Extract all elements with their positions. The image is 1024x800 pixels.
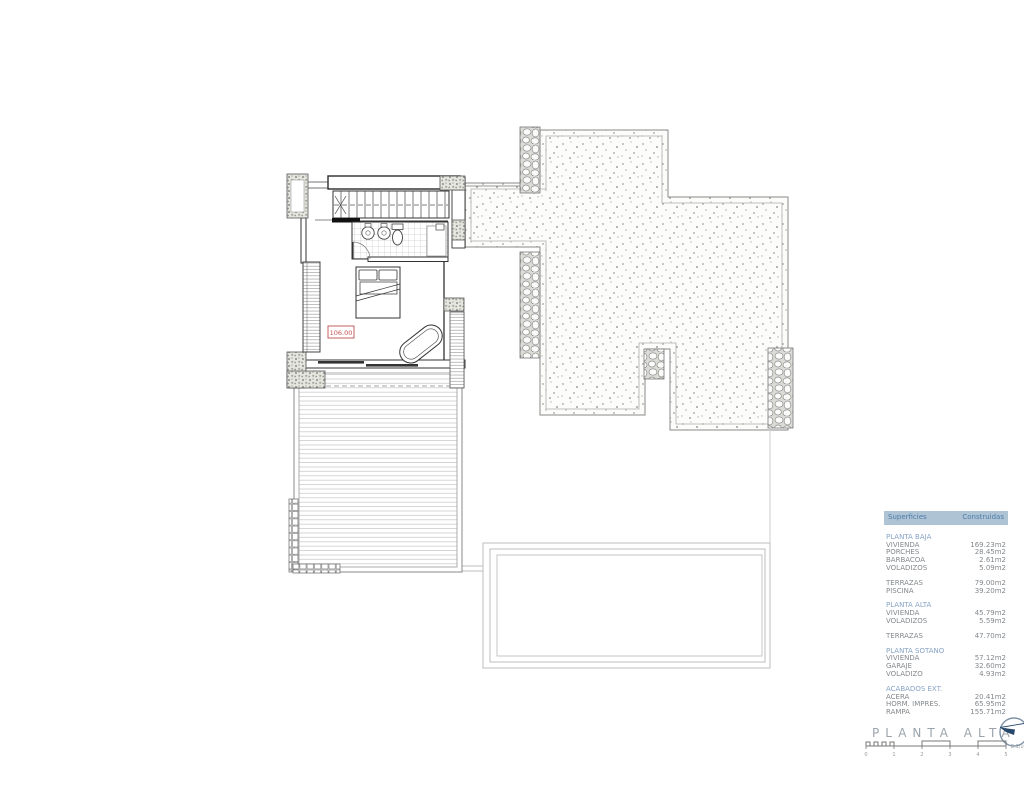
level-label: 106.00 bbox=[328, 326, 354, 338]
side-deck-strip bbox=[450, 312, 464, 388]
header-col-construidas: Construidas bbox=[962, 514, 1004, 522]
tap bbox=[365, 224, 371, 228]
toilet-tank bbox=[392, 224, 403, 230]
floor-plan-sheet: 106.00 Superficies Construidas PLANTA BA… bbox=[0, 0, 1024, 800]
row-value: 39.20m2 bbox=[975, 588, 1006, 596]
row-label: TERRAZAS bbox=[886, 633, 923, 641]
svg-text:106.00: 106.00 bbox=[330, 329, 353, 337]
pergola-beams-bottom bbox=[293, 564, 340, 573]
surfaces-table: Superficies Construidas PLANTA BAJAVIVIE… bbox=[884, 511, 1008, 717]
row-value: 5.09m2 bbox=[979, 565, 1006, 573]
row-value: 47.70m2 bbox=[975, 633, 1006, 641]
row-label: RAMPA bbox=[886, 709, 910, 717]
sliding-door-leaf bbox=[366, 364, 418, 367]
row-value: 5.59m2 bbox=[979, 618, 1006, 626]
sink bbox=[362, 227, 374, 239]
scale-number: 3 bbox=[948, 752, 951, 758]
wall-block bbox=[440, 176, 465, 190]
row-value: 4.93m2 bbox=[979, 671, 1006, 679]
surfaces-table-header: Superficies Construidas bbox=[884, 511, 1008, 525]
deck-terrace bbox=[289, 368, 462, 573]
scale-number: 2 bbox=[920, 752, 923, 758]
table-row: VOLADIZO4.93m2 bbox=[886, 671, 1006, 679]
table-row: VOLADIZOS5.59m2 bbox=[886, 618, 1006, 626]
left-wall bbox=[301, 218, 306, 263]
row-label: VOLADIZO bbox=[886, 671, 923, 679]
sink bbox=[378, 227, 390, 239]
table-section: ACABADOS EXT.ACERA20.41m2HORM. IMPRES.65… bbox=[886, 686, 1006, 717]
stone-wall-right bbox=[768, 348, 793, 428]
table-section: PLANTA SOTANOVIVIENDA57.12m2GARAJE32.60m… bbox=[886, 648, 1006, 679]
scale-number: 1 bbox=[892, 752, 895, 758]
table-row: TERRAZAS47.70m2 bbox=[886, 633, 1006, 641]
table-section: PLANTA BAJAVIVIENDA169.23m2PORCHES28.45m… bbox=[886, 534, 1006, 573]
wall-block bbox=[287, 371, 325, 388]
table-row: VOLADIZOS5.09m2 bbox=[886, 565, 1006, 573]
table-section: TERRAZAS47.70m2 bbox=[886, 633, 1006, 641]
bathroom bbox=[352, 222, 448, 262]
pergola-beams-left bbox=[289, 499, 298, 572]
scale-number: 0 bbox=[864, 752, 867, 758]
gravel-roof-terrace bbox=[465, 130, 788, 430]
swimming-pool bbox=[462, 428, 770, 668]
surfaces-table-body: PLANTA BAJAVIVIENDA169.23m2PORCHES28.45m… bbox=[884, 525, 1008, 717]
header-col-superficies: Superficies bbox=[888, 514, 927, 522]
staircase bbox=[315, 191, 449, 223]
wall-block bbox=[444, 298, 464, 311]
scale-number: 4 bbox=[976, 752, 979, 758]
sliding-door-leaf bbox=[318, 361, 364, 364]
stone-wall-mid bbox=[520, 252, 540, 358]
toilet-bowl bbox=[393, 230, 403, 245]
table-section: TERRAZAS79.00m2PISCINA39.20m2 bbox=[886, 580, 1006, 596]
row-label: VOLADIZOS bbox=[886, 565, 927, 573]
double-bed bbox=[356, 267, 400, 318]
tap bbox=[381, 224, 387, 228]
wardrobe bbox=[303, 262, 320, 352]
stone-wall-notch bbox=[644, 349, 664, 379]
table-section: PLANTA ALTAVIVIENDA45.79m2VOLADIZOS5.59m… bbox=[886, 602, 1006, 625]
scale-number: 5 bbox=[1004, 752, 1007, 758]
table-row: PISCINA39.20m2 bbox=[886, 588, 1006, 596]
shower-tray bbox=[427, 226, 446, 256]
row-label: VOLADIZOS bbox=[886, 618, 927, 626]
scale-label: E:1/100 bbox=[1011, 744, 1024, 750]
wall-block bbox=[452, 220, 465, 240]
row-label: PISCINA bbox=[886, 588, 914, 596]
floor-plan-drawing: 106.00 bbox=[0, 0, 1024, 800]
pillow bbox=[379, 270, 397, 280]
pillow bbox=[359, 270, 377, 280]
bathroom-wall bbox=[368, 257, 448, 262]
scale-bar: 0 1 2 3 4 5 E:1/100 bbox=[860, 738, 1024, 762]
cistern bbox=[436, 224, 444, 230]
table-row: RAMPA155.71m2 bbox=[886, 709, 1006, 717]
stone-wall-top bbox=[520, 127, 540, 193]
